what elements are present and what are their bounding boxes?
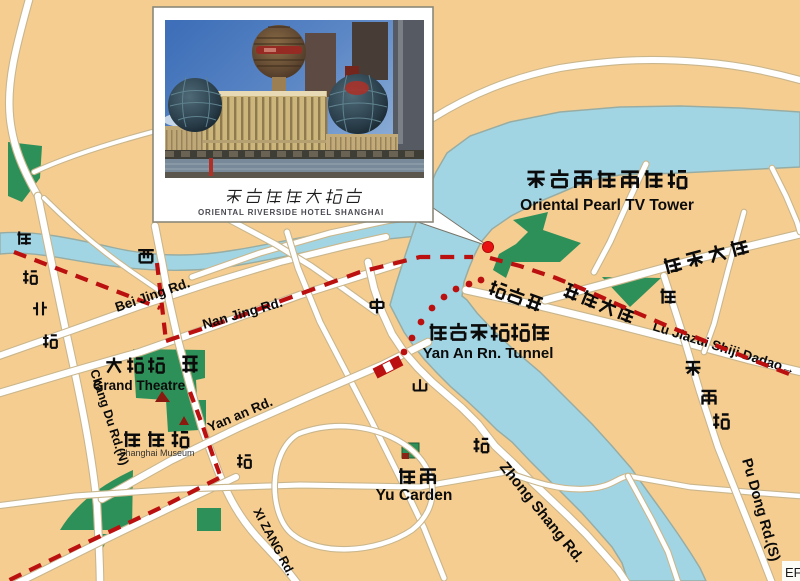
svg-text:ORIENTAL RIVERSIDE HOTEL SHANG: ORIENTAL RIVERSIDE HOTEL SHANGHAI xyxy=(198,208,384,217)
svg-text:Yu Carden: Yu Carden xyxy=(376,487,453,504)
svg-text:Oriental Pearl TV Tower: Oriental Pearl TV Tower xyxy=(520,197,694,214)
svg-text:Shanghai Museum: Shanghai Museum xyxy=(119,448,194,458)
svg-text:EF: EF xyxy=(785,565,800,580)
svg-text:Yan An Rn. Tunnel: Yan An Rn. Tunnel xyxy=(423,345,554,362)
